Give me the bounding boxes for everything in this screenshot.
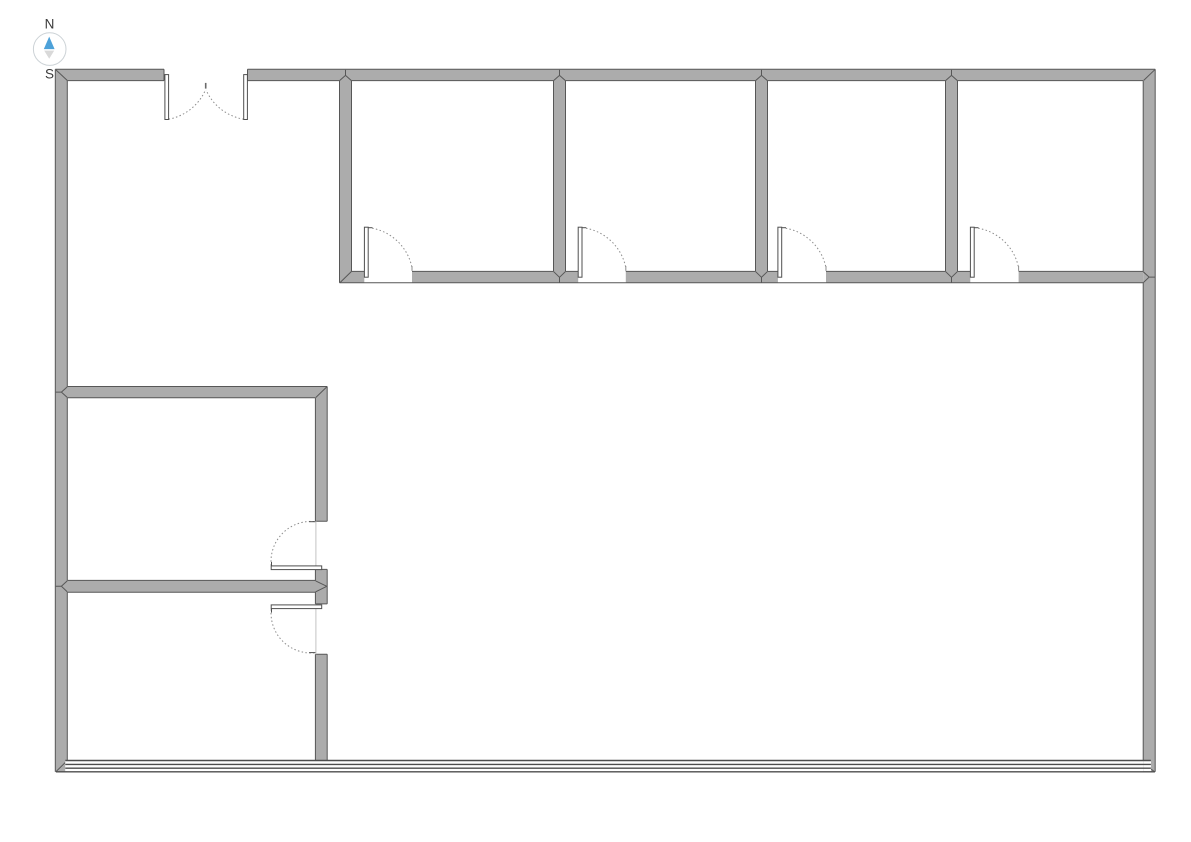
svg-text:S: S [45,67,54,82]
svg-text:N: N [45,17,55,32]
